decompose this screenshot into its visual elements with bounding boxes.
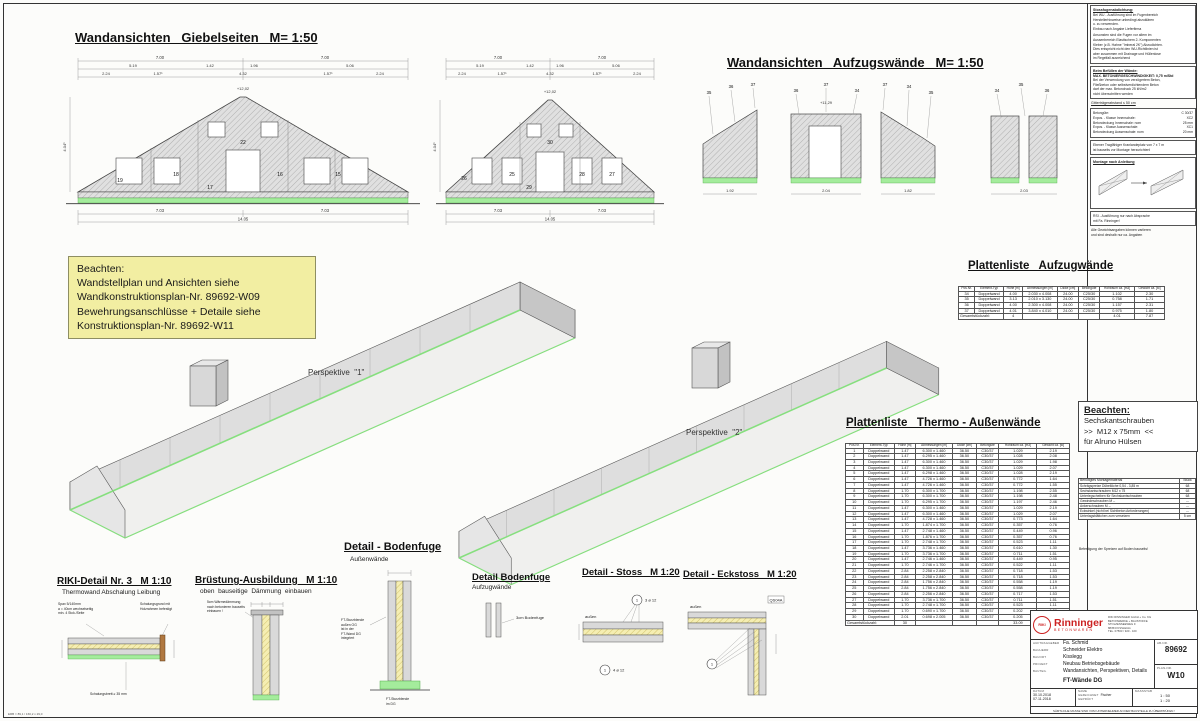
svg-text:5.06: 5.06 [612, 63, 621, 68]
svg-text:1.57¹: 1.57¹ [497, 71, 507, 76]
svg-text:4.32: 4.32 [546, 71, 555, 76]
svg-text:1.92: 1.92 [726, 188, 735, 193]
plattenliste-aufzug-table: Pos.Nr.Element-TypHöhe [m]Abmessungen [m… [958, 286, 1165, 320]
svg-text:14.05: 14.05 [238, 217, 249, 222]
svg-text:4.04¹: 4.04¹ [62, 142, 67, 152]
detail-bodenfuge2-title: Detail Bodenfuge [472, 572, 550, 583]
table-row: Unterlagsblättchen zum versetzen 5 cm [1079, 514, 1196, 519]
title-giebelseiten: Wandansichten Giebelseiten M= 1:50 [75, 30, 318, 45]
note-text: Bei WU - Ausführung sind im Fugenbereich… [1093, 13, 1193, 31]
title-block: RIKI Rinninger BETONWAREN RIKI RINNINGER… [1030, 610, 1198, 714]
table-body: 34Doppelwand4.002.030 x 4.008 24.00C25/3… [959, 291, 1165, 314]
svg-text:34: 34 [907, 84, 912, 89]
title-plattenliste-thermo: Plattenliste Thermo - Außenwände [846, 417, 1040, 429]
svg-text:1.42: 1.42 [206, 63, 215, 68]
svg-text:34: 34 [995, 88, 1000, 93]
plannr-cell: PLAN-NR. W10 [1155, 665, 1197, 681]
table-header-cell: Hohlraum ca. [m3] [1100, 287, 1135, 292]
note-text: Ebener Tragfähiger Kranlandeplatz von 7 … [1093, 143, 1193, 152]
betonguete-row: Betondeckung Aussenschale: nom20 mm [1093, 130, 1193, 135]
svg-text:7.03: 7.03 [494, 208, 503, 213]
note-gittertraeger: Gitterträgerabstand ≤ 50 cm [1091, 101, 1196, 106]
montagematerial-table: Benötigtes Montagematerial Stück Schrägs… [1078, 478, 1196, 520]
svg-text:1.42: 1.42 [526, 63, 535, 68]
svg-text:5.19: 5.19 [476, 63, 485, 68]
svg-text:15: 15 [335, 172, 341, 178]
massstab-cell: MASSSTAB 1 : 50 1 : 20 [1133, 689, 1197, 706]
note-title: Montage nach Anleitung [1093, 160, 1193, 164]
geprueft-label: GEPRÜFT [1078, 697, 1130, 701]
note-montage-anleitung: Montage nach Anleitung [1090, 157, 1196, 209]
detail-riki-subtitle: Thermowand Abschalung Leibung [62, 589, 160, 596]
perspective-2-label: Perspektive "2" [686, 428, 742, 437]
svg-text:37: 37 [883, 82, 888, 87]
svg-text:7.00: 7.00 [321, 55, 330, 60]
detail-bruestung-title: Brüstung-Ausbildung M 1:10 [195, 575, 337, 586]
riki-logo-icon: RIKI [1033, 616, 1051, 634]
svg-text:4.04¹: 4.04¹ [432, 142, 437, 152]
detail-eckstoss-title: Detail - Eckstoss M 1:20 [683, 569, 797, 580]
riki-logo-text: RIKI [1038, 623, 1045, 627]
field-row: BAUHERR Schneider Elektro [1033, 648, 1152, 655]
note-kranlandeplatz: Ebener Tragfähiger Kranlandeplatz von 7 … [1090, 140, 1196, 155]
bauteil2-value: FT-Wände DG [1063, 678, 1152, 684]
table-body: Schrägspreize Dübellöche 0,54 - 3,85 m 6… [1079, 483, 1196, 519]
montagematerial-footer: Befestigung der Spreizen auf Boden bause… [1079, 547, 1148, 552]
beachten-line: Sechskantschrauben [1084, 416, 1192, 427]
field-row: BAUTEIL Wandansichten, Perspektiven, Det… [1033, 669, 1152, 676]
svg-text:35: 35 [929, 90, 934, 95]
svg-text:2.24: 2.24 [458, 71, 467, 76]
svg-text:4.32: 4.32 [239, 71, 248, 76]
detail-riki-annotation: Spax 5/140mm a = 40cm wechselseitig min.… [58, 602, 110, 616]
company-address: RIKI RINNINGER GmbH + Co. KG BETONWERKE … [1108, 616, 1151, 633]
gable-elevation-1: 7.00 7.00 5.19 1.42 1.96 5.06 2.24 1.57¹… [58, 52, 428, 237]
detail-bodenfuge2-subtitle: Aufzugwände [472, 584, 511, 591]
svg-text:36: 36 [1045, 88, 1050, 93]
svg-text:7.03: 7.03 [156, 208, 165, 213]
name-cell: NAME GEZEICHNET Fischer GEPRÜFT [1076, 689, 1133, 706]
detail-bodenfuge2-drawing [470, 595, 560, 655]
svg-text:35: 35 [707, 90, 712, 95]
svg-text:+12,02: +12,02 [544, 89, 557, 94]
svg-text:17: 17 [207, 185, 213, 191]
detail-bruestung-subtitle: oben bauseitige Dämmung einbauen [200, 588, 312, 595]
svg-text:34: 34 [855, 88, 860, 93]
title-block-bottom-row: DATUM 30.10.2018 07.11.2018 NAME GEZEICH… [1031, 688, 1197, 706]
svg-text:außen: außen [585, 614, 596, 619]
title-block-fields-row: AUFTRAGGEBER Fa. Schmid BAUHERR Schneide… [1031, 640, 1197, 688]
svg-text:5.19: 5.19 [129, 63, 138, 68]
detail-stoss-drawing: außen 1 3 ø 12 1 4 ø 12 [575, 582, 675, 687]
right-notes-column: Stossfugenabdichtung: Bei WU - Ausführun… [1090, 5, 1196, 238]
detail-stoss-title: Detail - Stoss M 1:20 [582, 567, 680, 578]
svg-text:19: 19 [117, 178, 123, 184]
svg-text:14.05: 14.05 [545, 217, 556, 222]
detail-bodenfuge1-annotation: FT-Sturzblende außen OG ist in der FT-Wa… [341, 618, 375, 641]
svg-text:28: 28 [579, 172, 585, 178]
plannr-value: W10 [1157, 670, 1195, 680]
note-text: RSI - Ausführung nur nach Absprache mit … [1093, 214, 1193, 223]
svg-text:36: 36 [729, 84, 734, 89]
svg-text:7.00: 7.00 [156, 55, 165, 60]
svg-text:37: 37 [824, 82, 829, 87]
svg-text:2.24: 2.24 [633, 71, 642, 76]
montage-diagram [1093, 165, 1191, 201]
svg-text:1.82: 1.82 [904, 188, 913, 193]
gable-elevation-2: 7.00 7.00 5.19 1.42 1.96 5.06 2.24 1.57¹… [432, 52, 668, 237]
svg-text:36: 36 [794, 88, 799, 93]
fields-list: AUFTRAGGEBER Fa. Schmid BAUHERR Schneide… [1033, 641, 1152, 676]
svg-text:1.57¹: 1.57¹ [592, 71, 602, 76]
svg-text:18: 18 [173, 172, 179, 178]
detail-bruestung-drawing [205, 598, 320, 710]
detail-bruestung-annotation: 5cm Wärmedämmung nach betonieren bauseit… [207, 600, 253, 614]
logo-name: Rinninger [1054, 618, 1103, 629]
note-text: Ansonsten sind die Fugen vor allem im Au… [1093, 33, 1193, 61]
svg-text:2.24: 2.24 [102, 71, 111, 76]
svg-text:27: 27 [609, 172, 615, 178]
note-title: Beim Befüllen der Wände: [1093, 69, 1193, 73]
perspective-1-label: Perspektive "1" [308, 368, 364, 377]
svg-text:+12,02: +12,02 [237, 86, 250, 91]
perspective-views [40, 268, 940, 598]
title-block-logo-row: RIKI Rinninger BETONWAREN RIKI RINNINGER… [1031, 611, 1197, 640]
svg-text:1.57¹: 1.57¹ [323, 71, 333, 76]
datum-2: 07.11.2018 [1033, 697, 1073, 701]
detail-riki-title: RIKI-Detail Nr. 3 M 1:10 [57, 576, 171, 587]
svg-text:4 ø 12: 4 ø 12 [613, 668, 625, 673]
datum-cell: DATUM 30.10.2018 07.11.2018 [1031, 689, 1076, 706]
svg-text:35: 35 [1019, 82, 1024, 87]
svg-text:16: 16 [277, 172, 283, 178]
table-header-cell: Abmessungen [m] [1023, 287, 1057, 292]
detail-riki-annotation: Schalungsbrett ≥ 35 mm [90, 692, 150, 697]
note-stossfugen: Stossfugenabdichtung: Bei WU - Ausführun… [1090, 5, 1196, 64]
abnr-cell: AB-NR. 89692 [1155, 640, 1197, 665]
title-aufzugswaende: Wandansichten Aufzugswände M= 1:50 [727, 55, 984, 70]
svg-text:2.04: 2.04 [822, 188, 831, 193]
svg-text:37: 37 [751, 82, 756, 87]
title-block-disclaimer: SÄMTLICHE MASSE SIND VOM UNTERNEHMER AN … [1031, 706, 1197, 714]
svg-text:7.03: 7.03 [598, 208, 607, 213]
detail-bodenfuge1-subtitle: Außenwände [350, 556, 388, 563]
svg-text:5.06: 5.06 [346, 63, 355, 68]
svg-text:26: 26 [461, 176, 467, 182]
detail-bodenfuge1-title: Detail - Bodenfuge [344, 541, 441, 553]
logo-subtitle: BETONWAREN [1054, 628, 1103, 632]
project-fields: AUFTRAGGEBER Fa. Schmid BAUHERR Schneide… [1031, 640, 1155, 688]
svg-text:22: 22 [240, 140, 246, 146]
svg-text:2.03: 2.03 [1020, 188, 1029, 193]
beachten-line: >> M12 x 75mm << [1084, 427, 1192, 438]
svg-text:1.96: 1.96 [250, 63, 259, 68]
svg-text:7.00: 7.00 [598, 55, 607, 60]
svg-text:1.57¹: 1.57¹ [153, 71, 163, 76]
drawing-sheet: Wandansichten Giebelseiten M= 1:50 Wanda… [0, 0, 1200, 721]
gezeichnet-value: Fischer [1101, 693, 1112, 697]
elevator-wall-elevations: 35 36 37 1.92 36 37 34 +11,29 2.04 37 34… [695, 78, 1067, 210]
sheet-corner-note: ERB = 89,1 / 160,2 x 29,0 [8, 712, 42, 716]
svg-text:25: 25 [509, 172, 515, 178]
beachten-title: Beachten: [1084, 405, 1192, 416]
detail-eckstoss-drawing: außen QS04A 1 [678, 584, 793, 709]
detail-bodenfuge1-annotation: FT-Sturzblende im DG [386, 697, 426, 706]
note-betonguete: Betongüte:C 30/37Expos. - Klasse Innensc… [1090, 108, 1196, 138]
note-rsi: RSI - Ausführung nur nach Absprache mit … [1090, 211, 1196, 226]
note-befuellen: Beim Befüllen der Wände: MAX. BETONIERGE… [1090, 66, 1196, 99]
table-body: 1Doppelwand1.476.300 x 1.460 36.50C30/37… [846, 448, 1070, 620]
table-header-cell: Gewicht ca. [to] [1134, 287, 1164, 292]
title-plattenliste-aufzug: Plattenliste Aufzugwände [968, 260, 1113, 272]
disclaimer-text: SÄMTLICHE MASSE SIND VOM UNTERNEHMER AN … [1053, 709, 1175, 713]
abnr-value: 89692 [1157, 645, 1195, 654]
note-gewichte: Alle Gewichtsangaben können variieren un… [1091, 228, 1196, 237]
beachten-sechskant-box: Beachten: Sechskantschrauben >> M12 x 75… [1078, 401, 1198, 452]
svg-text:1.96: 1.96 [556, 63, 565, 68]
note-text: Bei der Verwendung von verzögertem Beton… [1093, 78, 1193, 96]
svg-text:QS04A: QS04A [770, 598, 783, 603]
note-title: Stossfugenabdichtung: [1093, 8, 1193, 12]
svg-text:2.24: 2.24 [376, 71, 385, 76]
table-total-row: Gesamtstückzahl: 4 4.01 7.87 [959, 314, 1165, 320]
beachten-line: für Alruno Hülsen [1084, 437, 1192, 448]
svg-text:+11,29: +11,29 [820, 100, 833, 105]
abnr-box: AB-NR. 89692 PLAN-NR. W10 [1155, 640, 1197, 688]
massstab-value: 1 : 50 1 : 20 [1135, 693, 1195, 703]
logo-name-block: Rinninger BETONWAREN [1054, 618, 1103, 633]
svg-text:3 ø 12: 3 ø 12 [645, 598, 657, 603]
svg-text:30: 30 [547, 140, 553, 146]
svg-text:7.03: 7.03 [321, 208, 330, 213]
plattenliste-thermo-table: Pos.Nr.Element-TypHöhe [m]Abmessungen [m… [845, 443, 1070, 626]
svg-text:außen: außen [690, 604, 701, 609]
detail-bodenfuge2-annotation: 3cm Bodenfuge [516, 615, 544, 620]
detail-riki-annotation: Schalungsgrund mit Holzrahmen befestigt [140, 602, 186, 611]
svg-text:29: 29 [526, 185, 532, 191]
svg-text:7.00: 7.00 [494, 55, 503, 60]
